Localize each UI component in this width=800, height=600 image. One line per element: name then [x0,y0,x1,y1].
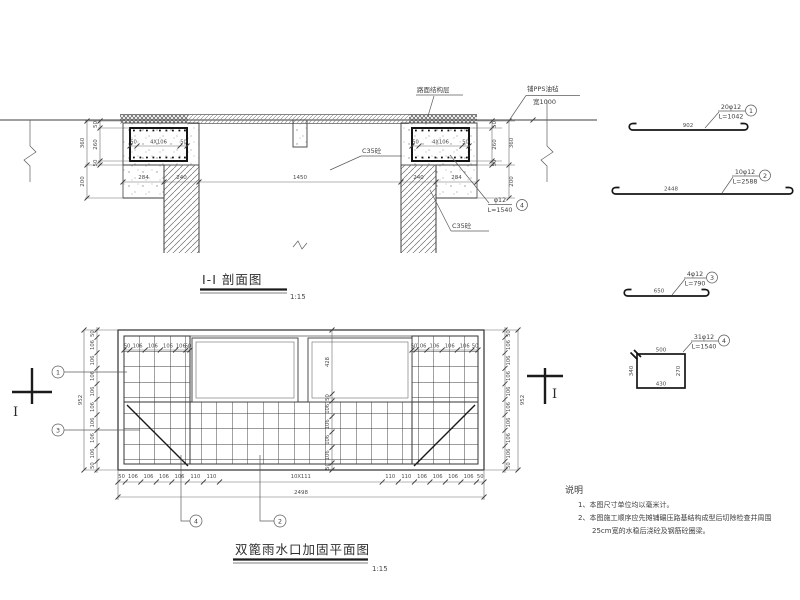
note-item-1: 1、本图尺寸单位均以毫米计。 [578,500,673,509]
dim: 260 [93,139,99,150]
dim: 106 [506,402,512,412]
rebar-detail-3: 650 4φ12 L=790 3 [624,271,717,296]
dim: 106 [90,387,96,397]
callout-2: 2 [278,519,282,526]
cad-sheet: 50 4X106 50 50 4X106 50 50 260 50 360 20… [0,0,800,600]
dim: 50 [93,159,99,166]
dim: 106 [448,474,458,480]
dim: 106 [144,474,154,480]
dim: 106 [159,474,169,480]
section-view: 50 4X106 50 50 4X106 50 50 260 50 360 20… [0,84,597,301]
dim: 106 [128,474,138,480]
dim-total: 952 [520,395,526,406]
callout-number: 2 [763,173,767,180]
dim: 50 [412,140,419,146]
dim: 50 [477,474,484,480]
dim: 500 [656,348,667,354]
dim: 106 [325,419,331,429]
center-divider [293,120,307,147]
dim: 50 [492,121,498,128]
dim: 106 [506,356,512,366]
rebar-grid [124,336,478,466]
dim: 50 [325,394,331,401]
dim: 50 [90,330,96,337]
dim: 50 [472,344,479,350]
bar-length: 902 [683,123,694,129]
section-letter-left: I [13,405,18,420]
dim: 10X111 [291,474,311,480]
dim: 106 [90,418,96,428]
dim: 106 [506,418,512,428]
dim: 106 [90,402,96,412]
dim: 1450 [293,175,307,181]
bar-length: 2448 [664,187,678,193]
dim: 284 [451,175,462,181]
dim: 106 [430,344,440,350]
dim: 270 [676,365,682,376]
rebar-detail-2: 2448 10φ12 L=2588 2 [612,169,793,194]
rebar-spec: φ12 [494,197,506,204]
bar-spec: 10φ12 [735,169,755,176]
dim: 240 [413,175,424,181]
bar-length: 650 [654,289,665,295]
dim-total: 2498 [294,490,308,496]
dim: 50 [506,330,512,337]
dim: 106 [506,433,512,443]
dim: 106 [148,344,158,350]
dim: 50 [492,159,498,166]
dim: 106 [417,474,427,480]
dim: 106 [445,344,455,350]
pps-width-label: 宽1000 [533,97,556,106]
side-chain-right: 50 106 106 106 106 106 106 106 106 50 95… [484,327,526,473]
break-mark-left [24,120,36,182]
dim: 106 [325,404,331,414]
dim: 106 [506,340,512,350]
callout-number: 4 [520,203,524,210]
section-dims-left: 50 260 50 360 200 [80,119,130,201]
view-title: 双篦雨水口加固平面图 [235,542,370,557]
dim: 200 [80,176,86,187]
dim: 340 [629,365,635,376]
dim: 110 [206,474,216,480]
dim: 4X106 [432,140,449,146]
dim: 284 [138,175,149,181]
callout-number: 1 [749,108,753,115]
break-mark-right [541,100,553,182]
dim: 106 [506,387,512,397]
dim: 110 [401,474,411,480]
dim: 50 [93,121,99,128]
dim: 428 [325,357,331,367]
grate-opening-left [192,338,298,402]
dim: 106 [417,344,427,350]
dim: 106 [464,474,474,480]
section-letter-right: I [552,387,557,402]
dim: 50 [462,140,469,146]
dim: 106 [506,449,512,459]
dim: 240 [176,175,187,181]
dim: 50 [506,462,512,469]
section-title: I-I 剖面图 1:15 [200,272,306,301]
bar-spec: 20φ12 [721,104,741,111]
view-scale: 1:15 [372,565,388,573]
dim: 50 [185,344,192,350]
dim: 106 [163,344,173,350]
grate-openings [192,338,412,402]
dim: 106 [90,356,96,366]
dim: 106 [90,340,96,350]
dim: 4X106 [150,140,167,146]
callout-number: 4 [722,338,726,345]
bar-cut-length: L=2588 [733,179,758,186]
dim: 106 [460,344,470,350]
c35-label-left: C35砼 [362,146,382,155]
dim: 110 [385,474,395,480]
dim: 200 [509,176,515,187]
bar-spec: 31φ12 [694,334,714,341]
road-layer-label: 路面结构层 [417,85,450,94]
stirrup-hooks [631,350,642,360]
note-item-2-continued: 25cm宽的水稳后浇砼及钢筋砼圈梁。 [592,526,710,535]
dim: 260 [492,139,498,150]
plan-title: 双篦雨水口加固平面图 1:15 [233,542,388,573]
dim: 50 [130,140,137,146]
callout-1: 1 [56,370,60,377]
bar-cut-length: L=1540 [692,344,717,351]
dim: 106 [90,433,96,443]
callout-4: 4 [194,519,198,526]
dim: 106 [175,474,185,480]
drawing-canvas: 50 4X106 50 50 4X106 50 50 260 50 360 20… [0,0,800,600]
dim: 110 [190,474,200,480]
c35-label-right: C35砼 [452,221,472,230]
dim: 430 [656,382,667,388]
dim: 106 [506,371,512,381]
dim: 50 [180,140,187,146]
dim: 106 [90,371,96,381]
view-scale: 1:15 [290,293,306,301]
bottom-chain: 50 106 106 106 106 110 110 10X111 110 11… [116,471,487,500]
dim: 106 [433,474,443,480]
dim: 106 [133,344,143,350]
dim: 50 [325,463,331,470]
callout-number: 3 [710,275,714,282]
dim: 106 [325,435,331,445]
bar-spec: 4φ12 [687,271,703,278]
break-mark-center [293,241,307,249]
dim: 50 [124,344,131,350]
rebar-detail-1: 902 20φ12 L=1042 1 [629,104,756,130]
dim: 50 [90,462,96,469]
pps-label: 铺PPS油毡 [527,84,559,93]
dim-total: 952 [78,395,84,406]
dim: 50 [118,474,125,480]
rebar-length: L=1540 [488,207,513,214]
bar-cut-length: L=1042 [719,114,744,121]
notes-heading: 说明 [565,484,583,496]
rebar-detail-4: 500 430 340 270 31φ12 L=1540 4 [629,334,730,388]
callout-3: 3 [56,428,60,435]
dim: 360 [80,137,86,148]
note-item-2: 2、本图施工顺序应先摊铺碾压路基结构成型后切除检查井周围 [578,513,771,522]
notes-block: 说明 1、本图尺寸单位均以毫米计。 2、本图施工顺序应先摊铺碾压路基结构成型后切… [565,484,771,535]
dim: 106 [90,449,96,459]
side-chain-left: 50 106 106 106 106 106 106 106 106 50 95… [78,327,118,473]
bar-cut-length: L=790 [685,281,706,288]
dim: 106 [325,450,331,460]
dim: 360 [509,137,515,148]
view-title: I-I 剖面图 [202,272,262,287]
plan-view: 50 106 106 106 106 50 50 106 106 106 106… [12,327,563,573]
grate-opening-right [308,338,412,402]
